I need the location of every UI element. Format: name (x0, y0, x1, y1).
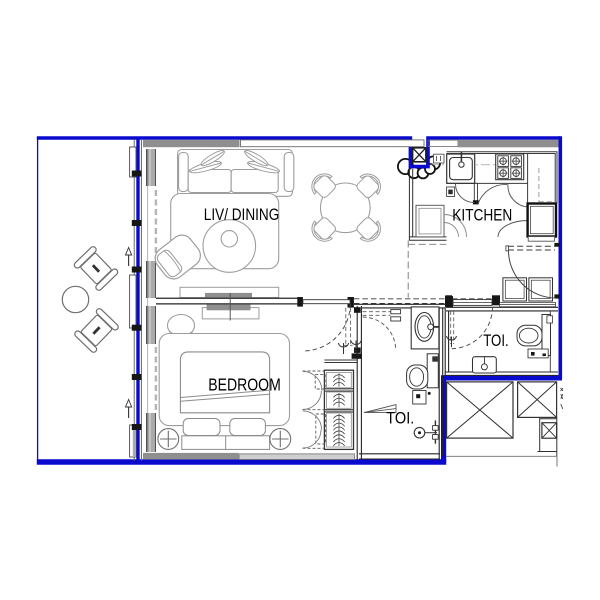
svg-text:TOI.: TOI. (483, 331, 509, 350)
svg-text:LIV/ DINING: LIV/ DINING (204, 205, 279, 224)
svg-text:BEDROOM: BEDROOM (208, 375, 280, 395)
svg-text:KITCHEN: KITCHEN (452, 205, 512, 224)
svg-text:TOI.: TOI. (386, 409, 414, 428)
